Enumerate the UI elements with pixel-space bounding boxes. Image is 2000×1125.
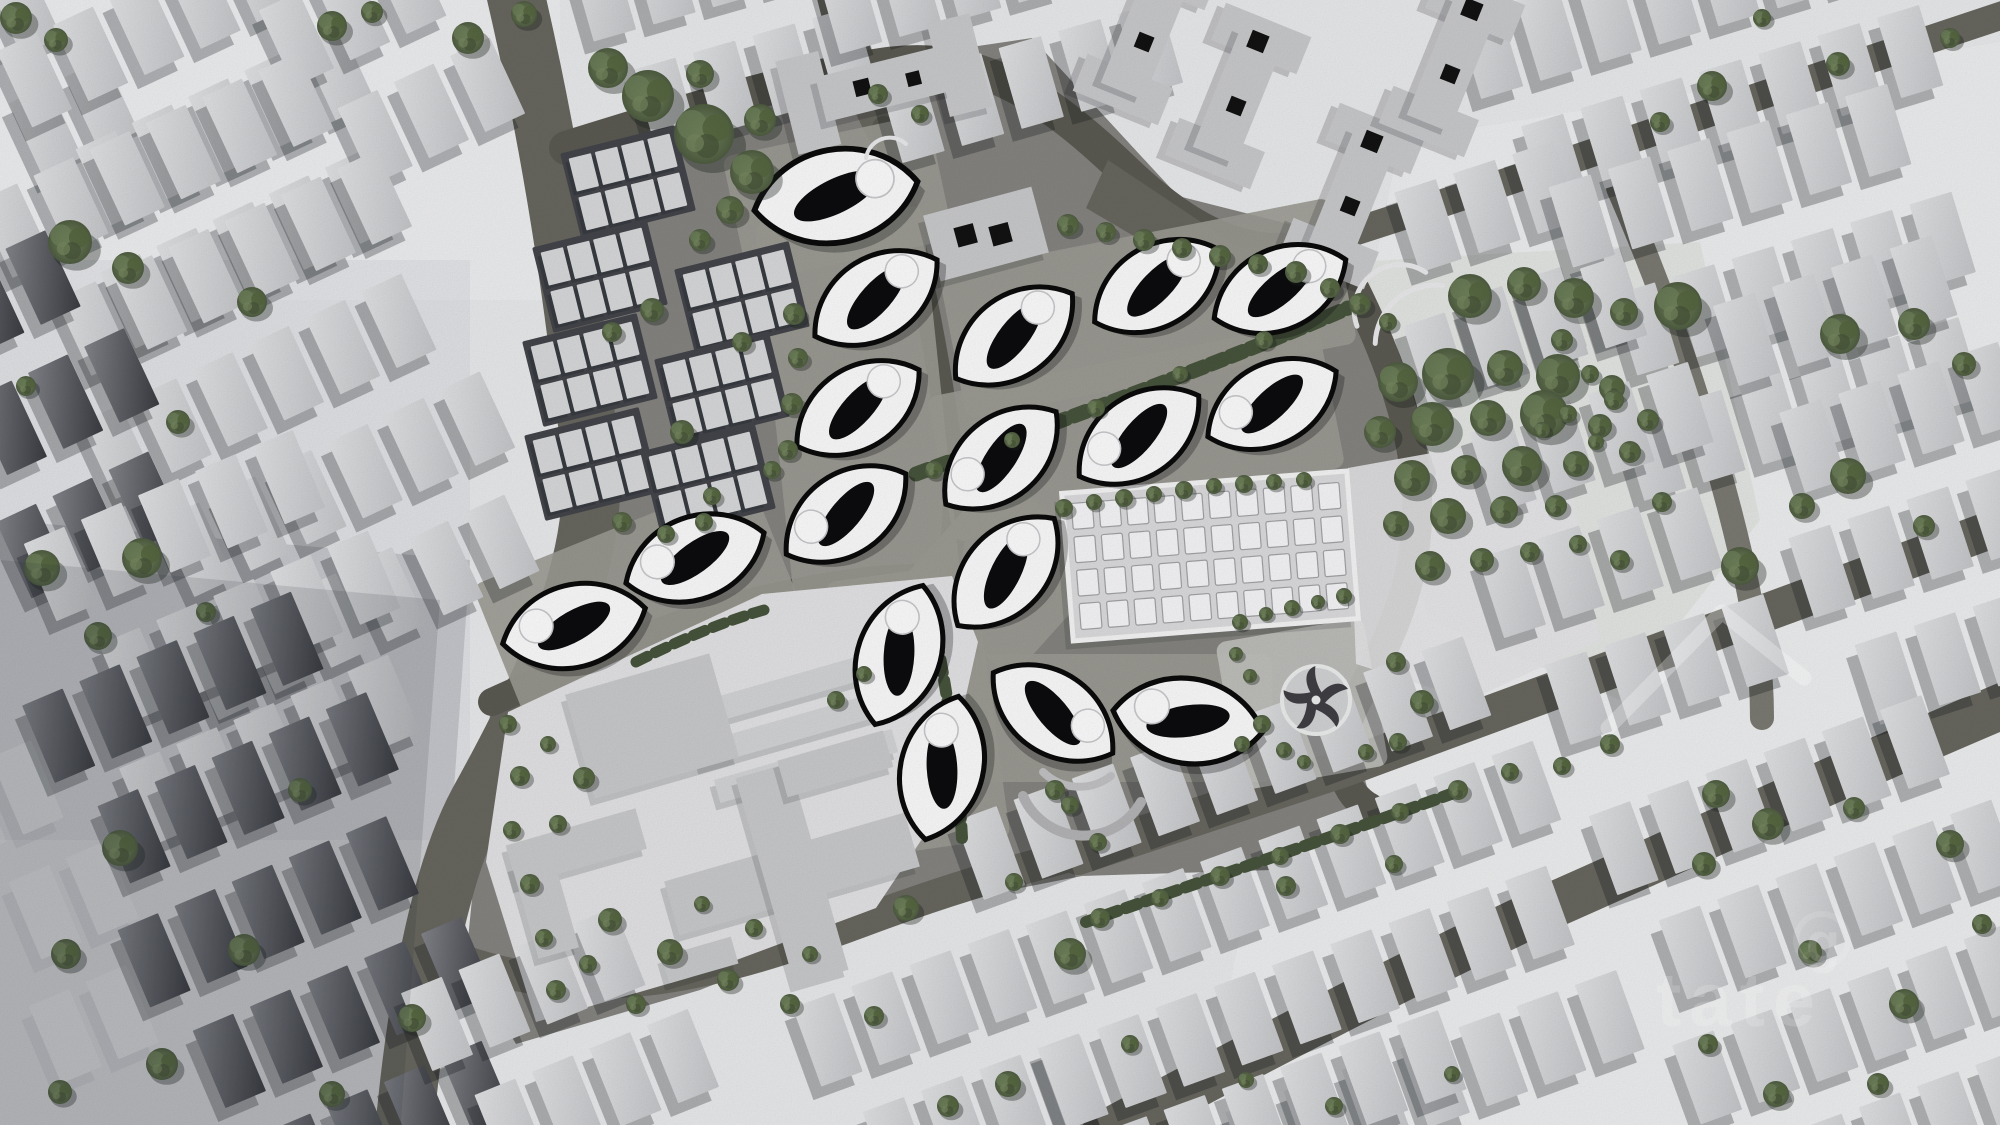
masterplan-viewport: g tate [0, 0, 2000, 1125]
watermark-text-fragment: tate [1656, 958, 1823, 1043]
masterplan-render: g tate [0, 0, 2000, 1125]
snow-grain-texture [0, 0, 2000, 1125]
